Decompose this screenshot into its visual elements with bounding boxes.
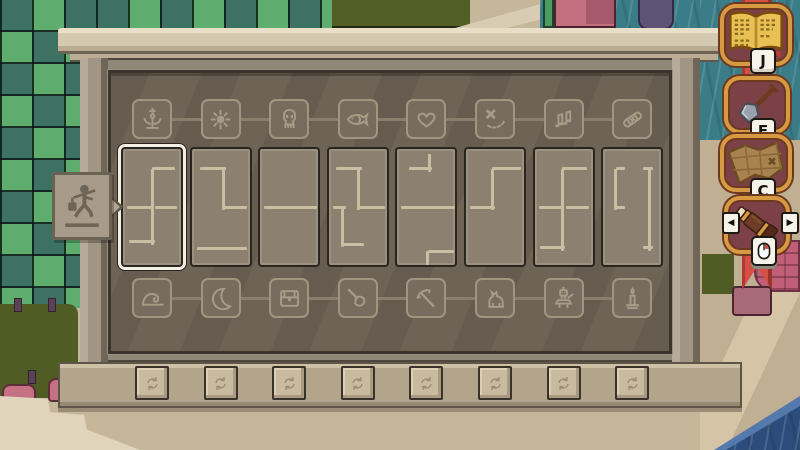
moon-icon bbox=[207, 285, 234, 312]
hedge-top bbox=[332, 0, 470, 28]
rotate-icon bbox=[486, 374, 505, 393]
card-path-segment bbox=[492, 167, 521, 170]
card-path-segment bbox=[566, 206, 588, 209]
card-path-segment bbox=[341, 207, 344, 247]
card-path-segment bbox=[401, 206, 455, 209]
icon-slot-candle bbox=[612, 278, 652, 318]
card-path-segment bbox=[643, 246, 653, 249]
puzzle-card[interactable] bbox=[601, 147, 663, 267]
rotate-icon bbox=[417, 374, 436, 393]
card-path-segment bbox=[491, 169, 494, 210]
puzzle-card[interactable] bbox=[395, 147, 457, 267]
card-path-segment bbox=[616, 206, 625, 209]
robot-icon bbox=[550, 285, 577, 312]
card-path-segment bbox=[561, 169, 564, 251]
card-path-segment bbox=[357, 169, 360, 210]
icon-slot-wave bbox=[132, 278, 172, 318]
board-cornice bbox=[58, 28, 722, 54]
wave-icon bbox=[139, 285, 166, 312]
card-path-segment bbox=[343, 243, 364, 246]
rotate-icon bbox=[143, 374, 162, 393]
card-path-segment bbox=[127, 206, 151, 209]
rotate-card-button[interactable] bbox=[547, 366, 581, 400]
plant bbox=[543, 0, 554, 28]
card-path-segment bbox=[129, 240, 155, 243]
rotate-card-button[interactable] bbox=[135, 366, 169, 400]
pickaxe-icon bbox=[413, 285, 440, 312]
card-path-segment bbox=[614, 169, 617, 210]
brick-structure bbox=[554, 0, 616, 28]
rotate-card-button[interactable] bbox=[204, 366, 238, 400]
sun-icon bbox=[207, 106, 234, 133]
puzzle-card[interactable] bbox=[121, 147, 183, 267]
bush bbox=[702, 254, 734, 294]
puzzle-card[interactable] bbox=[190, 147, 252, 267]
card-path-segment bbox=[616, 167, 625, 170]
card-path-segment bbox=[539, 206, 562, 209]
trowel-icon bbox=[344, 285, 371, 312]
music-notes-icon bbox=[550, 106, 577, 133]
card-path-segment bbox=[359, 206, 385, 209]
key-badge-journal: J bbox=[750, 48, 776, 74]
trunk bbox=[28, 370, 36, 384]
rotate-card-button[interactable] bbox=[615, 366, 649, 400]
icon-slot-robot bbox=[544, 278, 584, 318]
icon-slot-skull bbox=[269, 99, 309, 139]
dog-icon bbox=[482, 285, 509, 312]
puzzle-card[interactable] bbox=[327, 147, 389, 267]
icon-slot-sun bbox=[201, 99, 241, 139]
rotate-card-button[interactable] bbox=[272, 366, 306, 400]
icon-slot-moon bbox=[201, 278, 241, 318]
candle-icon bbox=[619, 285, 646, 312]
puzzle-card[interactable] bbox=[464, 147, 526, 267]
icon-slot-music-notes bbox=[544, 99, 584, 139]
card-path-segment bbox=[264, 206, 317, 209]
rotate-icon bbox=[280, 374, 299, 393]
hedge-canopy-top bbox=[96, 0, 332, 28]
rotate-card-button[interactable] bbox=[409, 366, 443, 400]
puzzle-card[interactable] bbox=[258, 147, 320, 267]
rock bbox=[638, 0, 674, 30]
icon-slot-treasure-x bbox=[475, 99, 515, 139]
card-path-segment bbox=[562, 167, 586, 170]
monument-icon bbox=[139, 106, 166, 133]
card-path-segment bbox=[222, 169, 225, 210]
icon-slot-heart bbox=[406, 99, 446, 139]
icon-slot-fish bbox=[338, 99, 378, 139]
chest-icon bbox=[276, 285, 303, 312]
card-path-segment bbox=[426, 251, 429, 264]
icon-slot-monument bbox=[132, 99, 172, 139]
key-label: J bbox=[760, 52, 766, 70]
fish-icon bbox=[344, 106, 371, 133]
card-path-segment bbox=[643, 167, 653, 170]
icon-slot-chest bbox=[269, 278, 309, 318]
icon-slot-bandage bbox=[612, 99, 652, 139]
mouse-hint-badge bbox=[751, 236, 777, 266]
spyglass-prev-button[interactable]: ◀ bbox=[722, 212, 740, 234]
game-screen: J F C bbox=[0, 0, 800, 450]
stone-block bbox=[732, 286, 772, 316]
trunk bbox=[48, 298, 56, 312]
rotate-icon bbox=[348, 374, 367, 393]
rotate-icon bbox=[211, 374, 230, 393]
board-pillar-right bbox=[672, 58, 700, 362]
rotate-card-button[interactable] bbox=[478, 366, 512, 400]
spyglass-next-button[interactable]: ▶ bbox=[781, 212, 799, 234]
mouse-icon bbox=[757, 242, 771, 260]
rotate-icon bbox=[623, 374, 642, 393]
right-arrow-icon: ▶ bbox=[787, 218, 794, 228]
icon-slot-pickaxe bbox=[406, 278, 446, 318]
card-path-segment bbox=[152, 167, 175, 170]
treasure-x-icon bbox=[482, 106, 509, 133]
left-arrow-icon: ◀ bbox=[728, 218, 735, 228]
card-path-segment bbox=[540, 246, 565, 249]
trunk bbox=[14, 298, 22, 312]
card-path-segment bbox=[428, 250, 455, 253]
traveler-sign bbox=[52, 172, 112, 240]
traveler-icon bbox=[58, 179, 106, 233]
icon-slot-dog bbox=[475, 278, 515, 318]
card-path-segment bbox=[223, 206, 246, 209]
heart-icon bbox=[413, 106, 440, 133]
card-path-segment bbox=[197, 247, 246, 250]
card-path-segment bbox=[648, 169, 651, 251]
card-path-segment bbox=[155, 206, 177, 209]
board-panel bbox=[108, 70, 672, 354]
rotate-icon bbox=[554, 374, 573, 393]
rotate-card-button[interactable] bbox=[341, 366, 375, 400]
bandage-icon bbox=[619, 106, 646, 133]
puzzle-card[interactable] bbox=[533, 147, 595, 267]
icon-slot-trowel bbox=[338, 278, 378, 318]
skull-icon bbox=[276, 106, 303, 133]
card-path-segment bbox=[409, 167, 432, 170]
